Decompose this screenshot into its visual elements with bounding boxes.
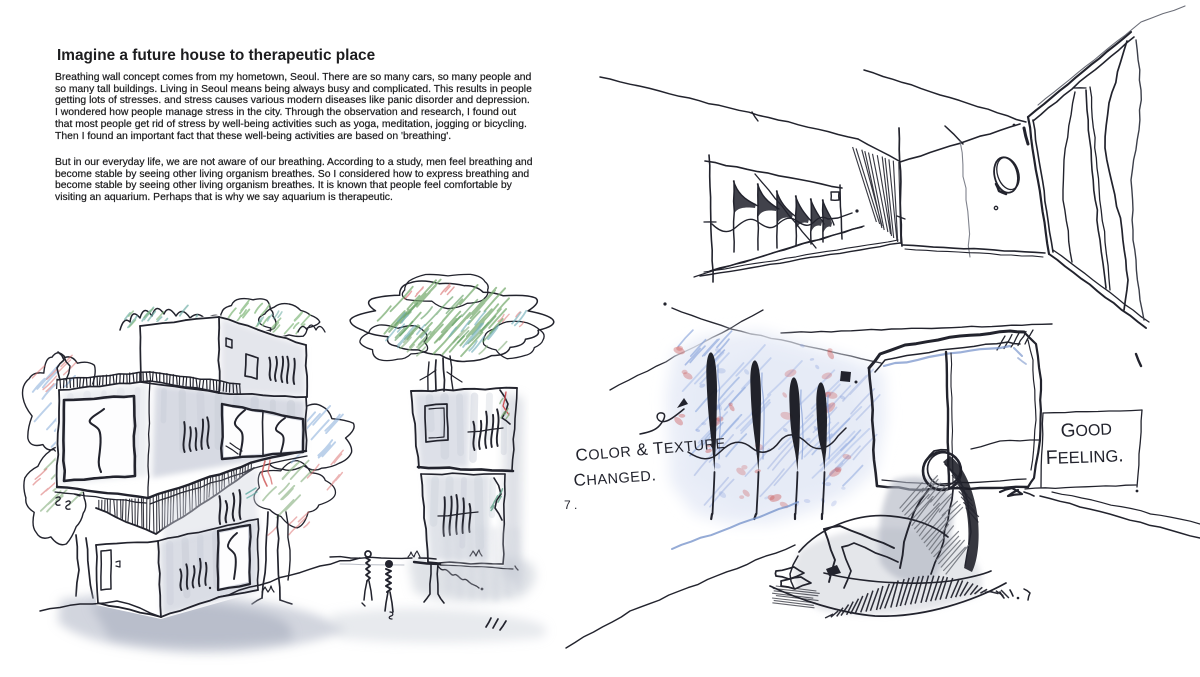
- svg-text:GOOD: GOOD: [1060, 418, 1112, 442]
- svg-text:7 .: 7 .: [564, 498, 577, 512]
- svg-text:FEELING.: FEELING.: [1045, 444, 1124, 469]
- svg-text:CHANGED.: CHANGED.: [573, 465, 657, 490]
